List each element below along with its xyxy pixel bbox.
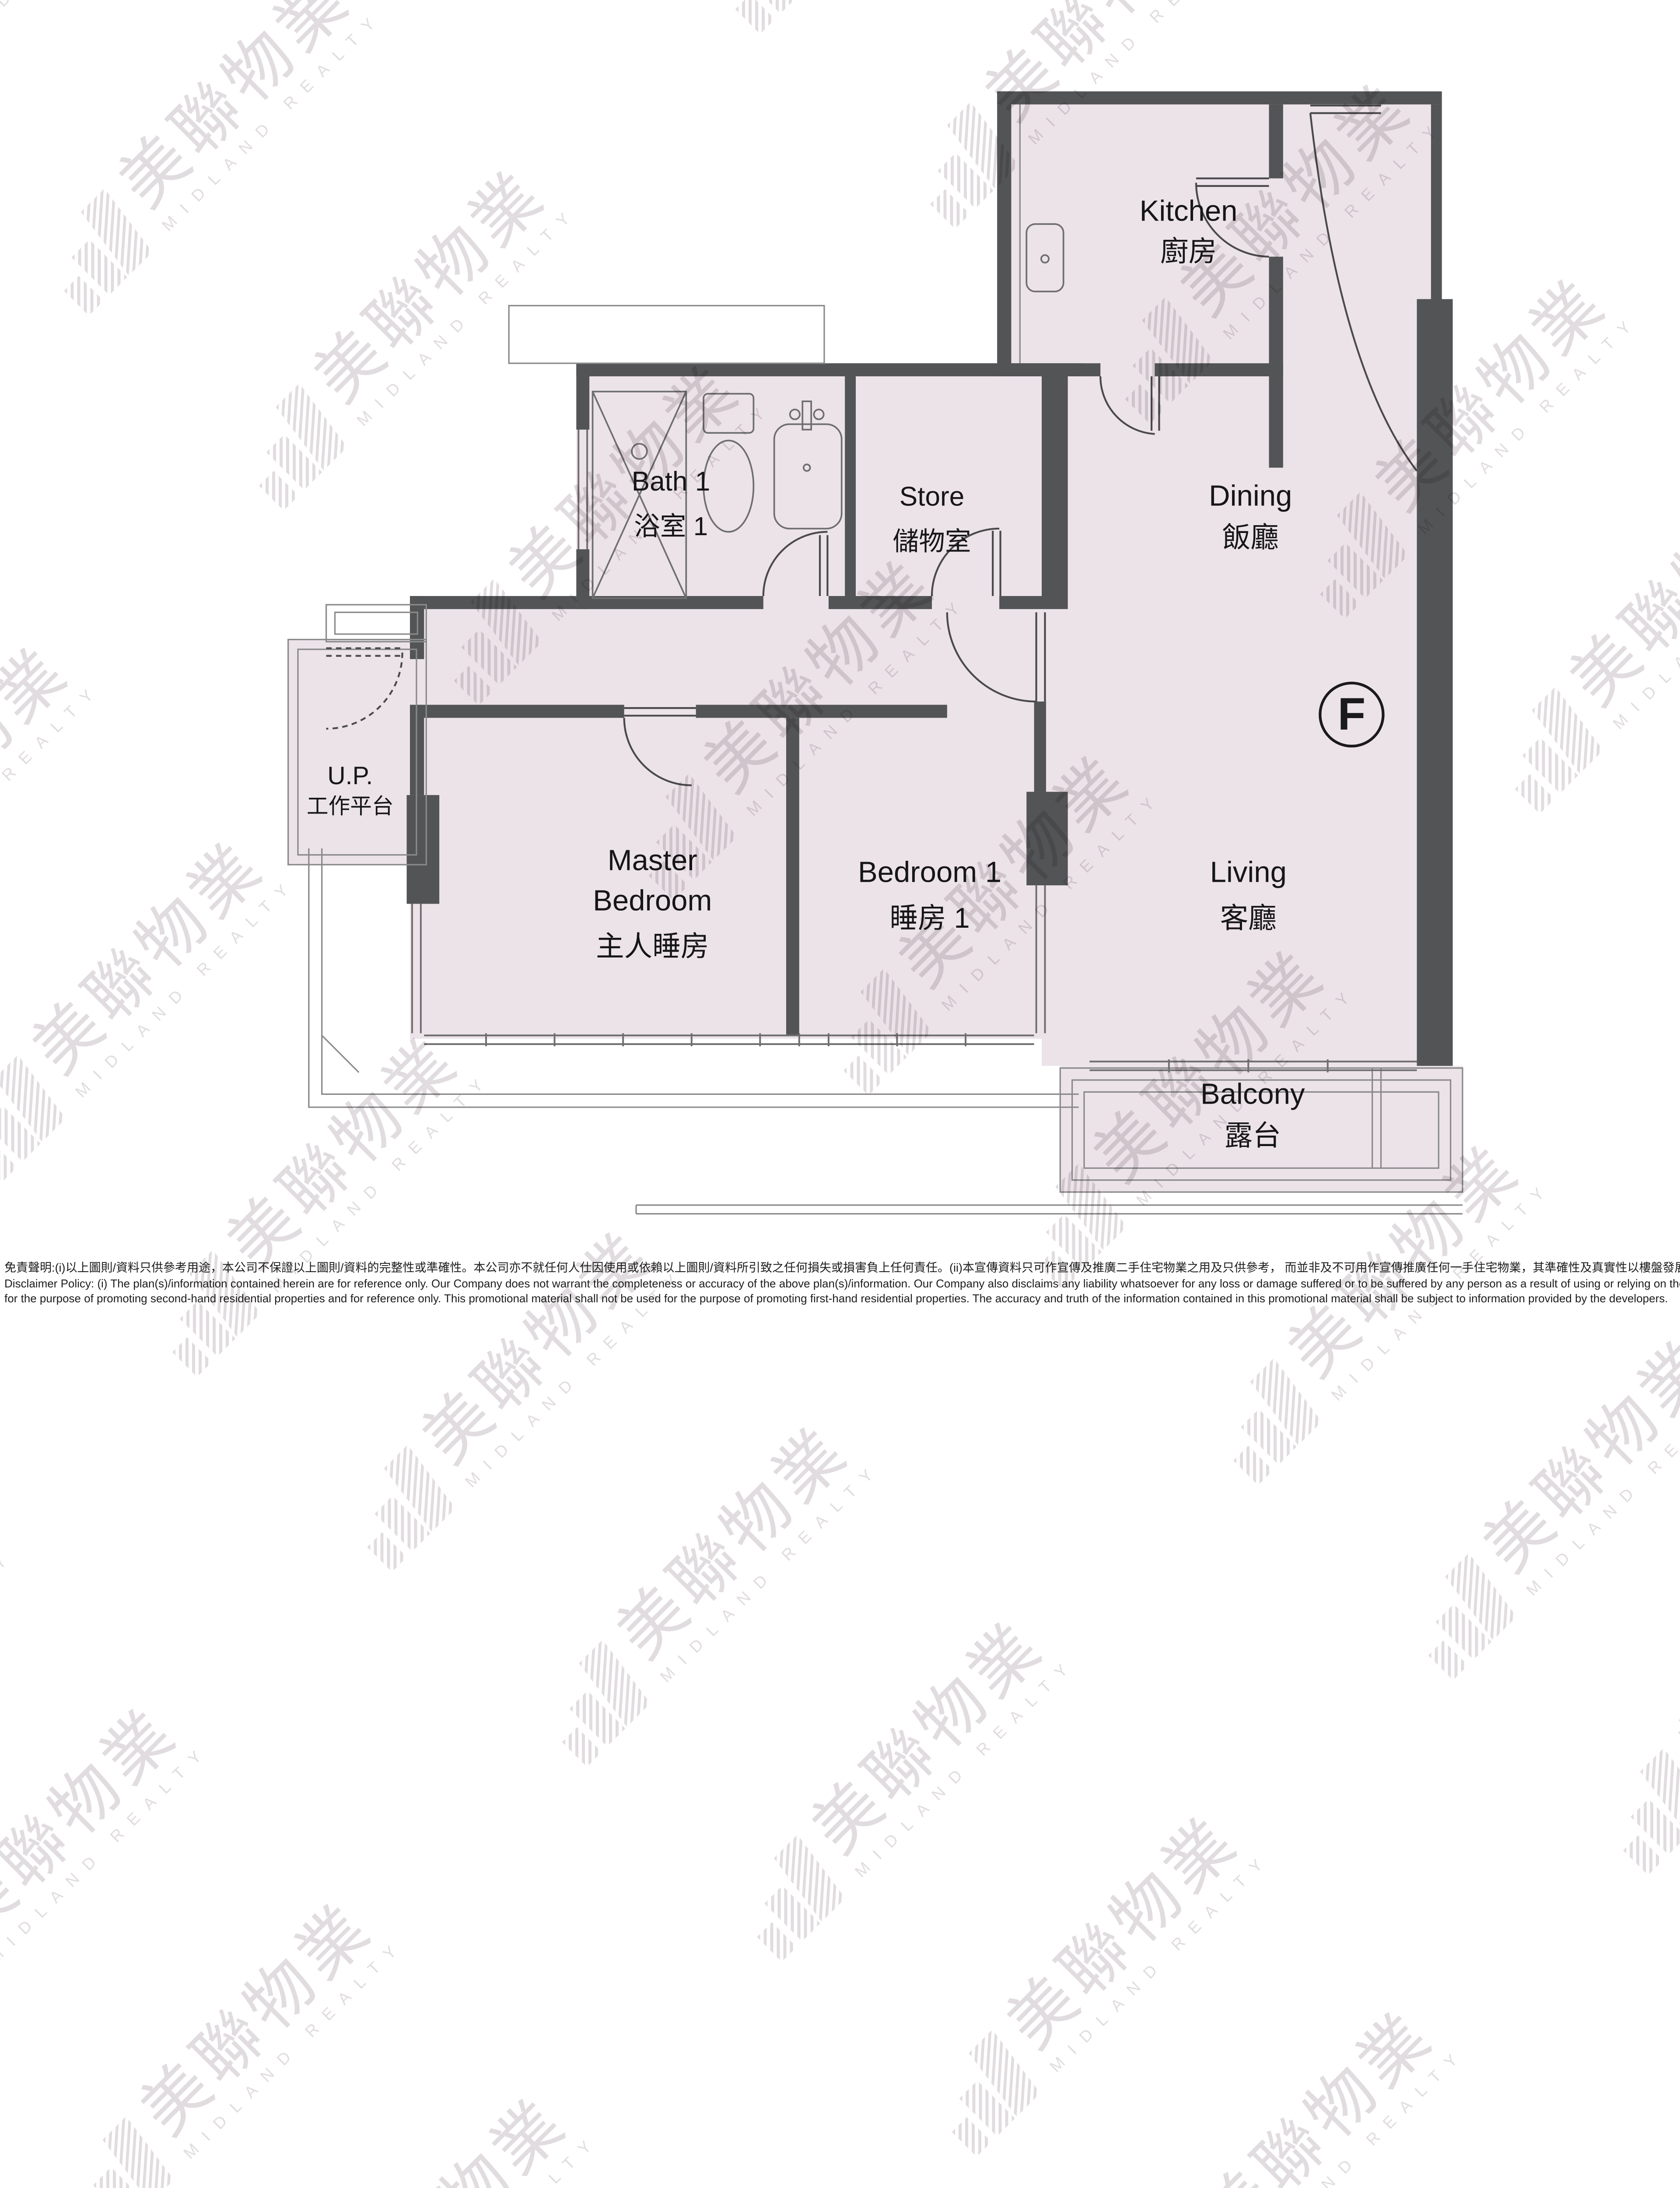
watermark-tile: 美聯物業 MIDLAND REALTY (906, 1776, 1286, 2157)
disclaimer-line-en1: Disclaimer Policy: (i) The plan(s)/infor… (4, 1276, 1676, 1291)
room-floors (288, 91, 1463, 1192)
unit-marker-letter: F (1338, 689, 1366, 740)
floor-plan-drawing: Kitchen 廚房 Dining 飯廳 Bath 1 浴室 1 Store 儲… (0, 0, 1680, 1308)
watermark-en-text: MIDLAND REALTY (1242, 2043, 1468, 2188)
disclaimer-line-en2: for the purpose of promoting second-hand… (4, 1291, 1676, 1306)
watermark-zh-text: 美聯物業 (1472, 1320, 1680, 1583)
label-up-en: U.P. (327, 762, 373, 790)
label-bath1-en: Bath 1 (632, 466, 710, 497)
floor-plan-page: { "watermark": { "zh": "美聯物業", "en": "MI… (0, 0, 1680, 1308)
watermark-tile: 美聯物業 MIDLAND REALTY (1577, 1494, 1680, 1875)
watermark-zh-text: 美聯物業 (0, 1689, 197, 1951)
label-living-en: Living (1210, 856, 1287, 889)
midland-logo-icon (921, 2030, 1048, 2157)
floor-dining-living (1042, 299, 1452, 1066)
slab-edge (636, 1205, 1463, 1214)
disclaimer-line-zh: 免責聲明:(i)以上圖則/資料只供參考用途，本公司不保證以上圖則/資料的完整性或… (4, 1260, 1676, 1276)
label-bath1-zh: 浴室 1 (634, 512, 708, 541)
floor-entry (1283, 91, 1442, 305)
midland-logo-icon (1592, 1748, 1680, 1875)
up-top-box-inner (335, 612, 418, 634)
watermark-tile: 美聯物業 MIDLAND REALTY (0, 1668, 225, 2048)
watermark-zh-text: 美聯物業 (801, 1602, 1063, 1865)
midland-logo-icon (726, 1835, 853, 1962)
watermark-zh-text: 美聯物業 (324, 2079, 587, 2188)
label-bedroom1-en: Bedroom 1 (858, 856, 1001, 889)
watermark-zh-text: 美聯物業 (606, 1407, 868, 1669)
floor-corridor (410, 596, 1082, 718)
label-bedroom1-zh: 睡房 1 (889, 902, 969, 934)
midland-logo-icon (55, 2117, 182, 2188)
watermark-zh-text: 美聯物業 (1667, 1515, 1680, 1778)
watermark-tile: 美聯物業 MIDLAND REALTY (0, 1473, 30, 1854)
midland-logo-icon (336, 1445, 463, 1572)
label-dining-en: Dining (1209, 480, 1292, 512)
watermark-en-text: MIDLAND REALTY (181, 1935, 407, 2161)
watermark-en-text: MIDLAND REALTY (657, 1459, 884, 1685)
watermark-zh-text: 美聯物業 (0, 1494, 2, 1756)
midland-logo-icon (531, 1640, 658, 1767)
floor-master (410, 712, 799, 1039)
label-kitchen-en: Kitchen (1140, 195, 1238, 228)
label-living-zh: 客廳 (1220, 902, 1277, 934)
watermark-en-text: MIDLAND REALTY (1523, 1372, 1680, 1599)
watermark-tile: 美聯物業 MIDLAND REALTY (516, 1386, 896, 1767)
floor-up (288, 639, 427, 864)
duct-outline (509, 305, 824, 363)
watermark-tile: 美聯物業 MIDLAND REALTY (234, 2058, 615, 2188)
disclaimer: 免責聲明:(i)以上圖則/資料只供參考用途，本公司不保證以上圖則/資料的完整性或… (4, 1260, 1676, 1306)
watermark-tile: 美聯物業 MIDLAND REALTY (1100, 1971, 1481, 2188)
watermark-en-text: MIDLAND REALTY (1047, 1848, 1274, 2075)
watermark-en-text: MIDLAND REALTY (375, 2130, 602, 2188)
watermark-tile: 美聯物業 MIDLAND REALTY (39, 1863, 420, 2188)
label-store-en: Store (899, 482, 965, 512)
label-store-zh: 儲物室 (893, 527, 971, 556)
watermark-zh-text: 美聯物業 (1190, 1992, 1453, 2188)
label-master-en1: Master (608, 844, 697, 877)
watermark-en-text: MIDLAND REALTY (0, 1545, 17, 1772)
midland-logo-icon (1203, 1358, 1330, 1485)
label-balcony-zh: 露台 (1225, 1120, 1281, 1151)
watermark-tile: 美聯物業 MIDLAND REALTY (710, 1581, 1091, 1962)
bay-corner-diagonal (322, 1035, 359, 1073)
label-master-en2: Bedroom (593, 884, 712, 917)
watermark-en-text: MIDLAND REALTY (852, 1653, 1078, 1880)
watermark-zh-text: 美聯物業 (995, 1797, 1258, 2059)
watermark-zh-text: 美聯物業 (129, 1883, 392, 2146)
label-master-zh: 主人睡房 (596, 931, 709, 962)
label-kitchen-zh: 廚房 (1160, 236, 1217, 267)
label-up-zh: 工作平台 (307, 794, 394, 818)
label-dining-zh: 飯廳 (1222, 522, 1279, 553)
label-balcony-en: Balcony (1200, 1078, 1305, 1111)
watermark-tile: 美聯物業 MIDLAND REALTY (1382, 1300, 1680, 1680)
midland-logo-icon (1397, 1553, 1524, 1680)
watermark-en-text: MIDLAND REALTY (0, 1740, 213, 1967)
